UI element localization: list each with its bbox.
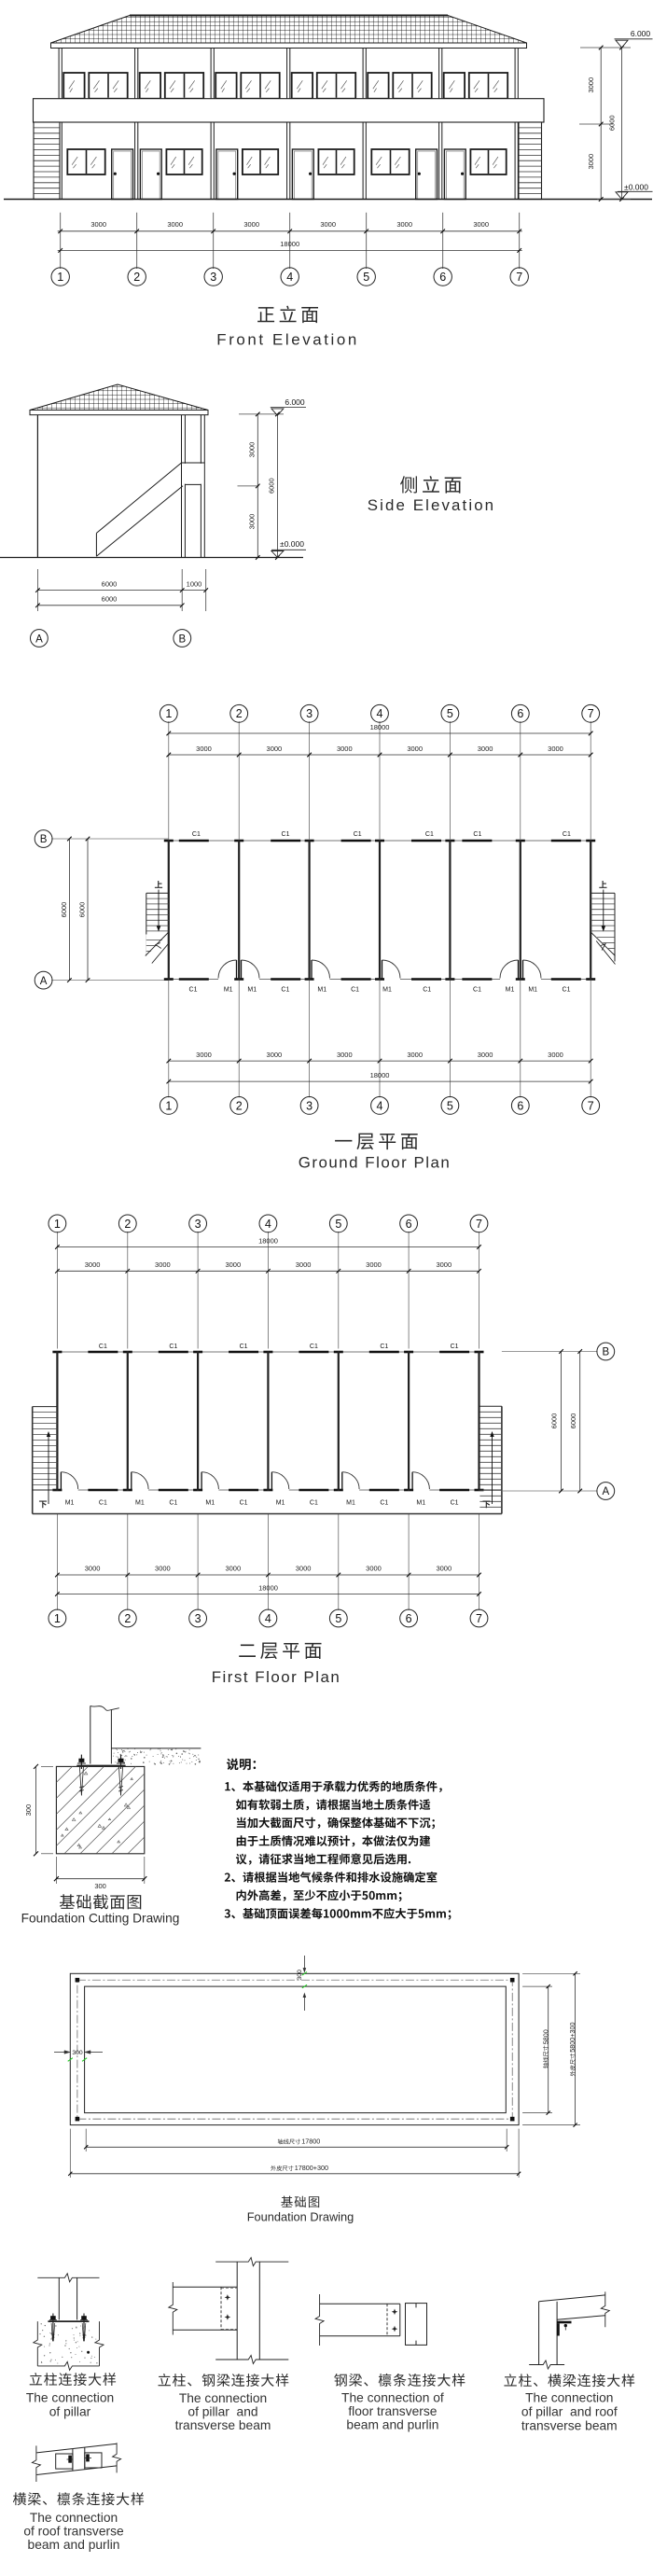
svg-text:2: 2: [133, 271, 140, 284]
svg-text:C1: C1: [169, 1500, 177, 1507]
svg-text:A: A: [602, 1486, 609, 1497]
svg-text:M1: M1: [247, 987, 257, 994]
svg-text:3: 3: [210, 271, 216, 284]
svg-text:6.000: 6.000: [285, 397, 305, 407]
svg-text:3000: 3000: [407, 1051, 423, 1059]
svg-text:of pillar: of pillar: [49, 2405, 91, 2419]
svg-text:6000: 6000: [268, 478, 276, 494]
svg-text:C1: C1: [310, 1500, 318, 1507]
svg-text:300: 300: [24, 1804, 33, 1817]
svg-text:6000: 6000: [550, 1413, 559, 1429]
svg-text:2: 2: [124, 1218, 131, 1231]
svg-text:C1: C1: [282, 831, 290, 838]
svg-text:3000: 3000: [478, 745, 493, 753]
svg-text:±0.000: ±0.000: [624, 183, 648, 192]
svg-text:beam and purlin: beam and purlin: [346, 2418, 438, 2432]
svg-text:M1: M1: [135, 1500, 145, 1507]
svg-text:7: 7: [476, 1218, 482, 1231]
svg-text:Front Elevation: Front Elevation: [216, 331, 359, 349]
svg-text:5800+300: 5800+300: [568, 2023, 577, 2053]
svg-text:18000: 18000: [258, 1583, 278, 1592]
svg-text:1000: 1000: [187, 579, 202, 588]
svg-text:6000: 6000: [102, 579, 118, 588]
svg-text:A: A: [40, 976, 48, 987]
svg-text:M1: M1: [65, 1500, 75, 1507]
svg-text:7: 7: [476, 1612, 482, 1625]
svg-text:18000: 18000: [258, 1236, 278, 1245]
svg-text:4: 4: [265, 1612, 271, 1625]
svg-text:Foundation Cutting Drawing: Foundation Cutting Drawing: [21, 1911, 180, 1925]
svg-text:3000: 3000: [337, 745, 353, 753]
svg-text:The connection: The connection: [30, 2511, 118, 2525]
svg-text:5: 5: [363, 271, 369, 284]
svg-text:Ground Floor Plan: Ground Floor Plan: [299, 1154, 452, 1172]
svg-text:4: 4: [286, 271, 293, 284]
svg-text:M1: M1: [382, 987, 392, 994]
svg-text:C1: C1: [99, 1344, 107, 1350]
svg-text:18000: 18000: [280, 240, 299, 248]
svg-text:3000: 3000: [267, 745, 283, 753]
svg-text:3000: 3000: [478, 1051, 493, 1059]
svg-text:1: 1: [54, 1612, 61, 1625]
svg-text:transverse beam: transverse beam: [175, 2418, 271, 2432]
svg-text:5: 5: [335, 1612, 341, 1625]
svg-text:3000: 3000: [320, 220, 336, 229]
svg-text:6000: 6000: [569, 1413, 577, 1429]
svg-text:C1: C1: [310, 1344, 318, 1350]
svg-text:3000: 3000: [473, 220, 489, 229]
svg-text:3000: 3000: [85, 1565, 101, 1573]
svg-text:B: B: [40, 834, 48, 845]
svg-text:floor transverse: floor transverse: [348, 2404, 437, 2418]
svg-text:The connection: The connection: [525, 2391, 613, 2405]
svg-text:300: 300: [297, 1970, 303, 1981]
svg-text:300: 300: [94, 1882, 106, 1890]
svg-text:3000: 3000: [548, 745, 563, 753]
svg-text:M1: M1: [416, 1500, 425, 1507]
svg-text:The connection: The connection: [179, 2391, 267, 2405]
svg-text:1: 1: [165, 707, 172, 720]
svg-text:M1: M1: [528, 987, 537, 994]
svg-text:transverse beam: transverse beam: [521, 2418, 618, 2432]
svg-text:18000: 18000: [370, 723, 390, 731]
svg-text:3000: 3000: [407, 745, 423, 753]
svg-text:6: 6: [439, 271, 446, 284]
svg-text:B: B: [178, 634, 186, 645]
svg-text:3: 3: [306, 1099, 313, 1112]
svg-text:of pillar and roof: of pillar and roof: [521, 2404, 618, 2418]
svg-text:The connection of: The connection of: [341, 2391, 444, 2405]
svg-text:2: 2: [236, 1099, 243, 1112]
svg-text:of pillar and: of pillar and: [188, 2404, 257, 2418]
svg-text:C1: C1: [563, 831, 571, 838]
svg-text:3: 3: [306, 707, 313, 720]
svg-text:17800: 17800: [301, 2137, 320, 2146]
svg-text:M1: M1: [346, 1500, 355, 1507]
svg-text:C1: C1: [240, 1344, 248, 1350]
svg-text:7: 7: [588, 707, 594, 720]
svg-text:18000: 18000: [370, 1071, 390, 1079]
svg-text:3000: 3000: [296, 1260, 312, 1269]
svg-text:3000: 3000: [155, 1260, 171, 1269]
svg-text:The connection: The connection: [26, 2390, 114, 2404]
svg-text:2: 2: [124, 1612, 131, 1625]
svg-text:3000: 3000: [167, 220, 183, 229]
svg-text:M1: M1: [506, 987, 515, 994]
svg-text:5: 5: [335, 1218, 341, 1231]
svg-text:6: 6: [406, 1218, 412, 1231]
svg-text:C1: C1: [473, 987, 481, 994]
svg-text:M1: M1: [317, 987, 326, 994]
svg-text:C1: C1: [240, 1500, 248, 1507]
svg-text:3000: 3000: [85, 1260, 101, 1269]
svg-text:300: 300: [72, 2050, 83, 2056]
svg-text:M1: M1: [205, 1500, 215, 1507]
svg-text:3000: 3000: [267, 1051, 283, 1059]
svg-text:C1: C1: [99, 1500, 107, 1507]
svg-text:5: 5: [447, 1099, 453, 1112]
svg-text:3000: 3000: [396, 220, 412, 229]
svg-text:5800: 5800: [541, 2029, 549, 2044]
svg-text:2: 2: [236, 707, 243, 720]
svg-text:M1: M1: [224, 987, 233, 994]
svg-text:C1: C1: [189, 987, 198, 994]
svg-text:6: 6: [517, 1099, 523, 1112]
svg-text:6: 6: [406, 1612, 412, 1625]
svg-text:Side Elevation: Side Elevation: [368, 496, 495, 514]
svg-text:3000: 3000: [196, 745, 212, 753]
svg-text:3000: 3000: [436, 1565, 452, 1573]
svg-text:M1: M1: [276, 1500, 285, 1507]
svg-text:6.000: 6.000: [631, 29, 651, 38]
svg-text:3000: 3000: [225, 1565, 241, 1573]
svg-text:7: 7: [516, 271, 522, 284]
svg-text:3000: 3000: [548, 1051, 563, 1059]
svg-text:6000: 6000: [607, 115, 616, 131]
svg-text:3000: 3000: [296, 1565, 312, 1573]
svg-text:3000: 3000: [248, 514, 257, 530]
svg-text:6000: 6000: [102, 595, 118, 604]
svg-text:1: 1: [54, 1218, 61, 1231]
svg-text:C1: C1: [380, 1344, 388, 1350]
svg-text:3: 3: [195, 1612, 201, 1625]
svg-text:C1: C1: [425, 831, 434, 838]
svg-text:6: 6: [517, 707, 523, 720]
svg-text:C1: C1: [380, 1500, 388, 1507]
svg-text:C1: C1: [354, 831, 362, 838]
svg-text:C1: C1: [281, 987, 289, 994]
svg-text:C1: C1: [169, 1344, 177, 1350]
svg-text:3000: 3000: [90, 220, 106, 229]
svg-text:3000: 3000: [337, 1051, 353, 1059]
svg-text:3000: 3000: [587, 77, 595, 93]
svg-text:7: 7: [588, 1099, 594, 1112]
svg-text:6000: 6000: [77, 902, 86, 918]
svg-text:5: 5: [447, 707, 453, 720]
svg-text:C1: C1: [563, 987, 571, 994]
svg-text:4: 4: [377, 707, 383, 720]
svg-text:First Floor Plan: First Floor Plan: [212, 1668, 341, 1686]
svg-text:C1: C1: [451, 1500, 459, 1507]
svg-text:C1: C1: [351, 987, 359, 994]
svg-text:C1: C1: [451, 1344, 459, 1350]
svg-text:3000: 3000: [366, 1565, 382, 1573]
svg-text:±0.000: ±0.000: [280, 539, 304, 549]
svg-text:A: A: [35, 634, 43, 645]
svg-text:C1: C1: [473, 831, 481, 838]
svg-text:6000: 6000: [60, 902, 68, 918]
svg-text:3000: 3000: [248, 442, 257, 458]
svg-text:3000: 3000: [243, 220, 259, 229]
svg-text:C1: C1: [423, 987, 431, 994]
svg-text:1: 1: [165, 1099, 172, 1112]
svg-text:3000: 3000: [587, 154, 595, 170]
svg-text:C1: C1: [192, 831, 201, 838]
svg-text:17800+300: 17800+300: [295, 2164, 328, 2172]
svg-text:3000: 3000: [366, 1260, 382, 1269]
svg-text:3: 3: [195, 1218, 201, 1231]
svg-text:3000: 3000: [196, 1051, 212, 1059]
svg-text:3000: 3000: [155, 1565, 171, 1573]
svg-text:4: 4: [377, 1099, 383, 1112]
svg-text:1: 1: [57, 271, 63, 284]
svg-text:B: B: [602, 1347, 609, 1358]
svg-text:4: 4: [265, 1218, 271, 1231]
svg-text:of roof transverse: of roof transverse: [23, 2524, 124, 2538]
svg-text:3000: 3000: [436, 1260, 452, 1269]
svg-text:3000: 3000: [225, 1260, 241, 1269]
svg-text:beam and purlin: beam and purlin: [28, 2538, 120, 2552]
svg-text:Foundation Drawing: Foundation Drawing: [247, 2210, 354, 2224]
